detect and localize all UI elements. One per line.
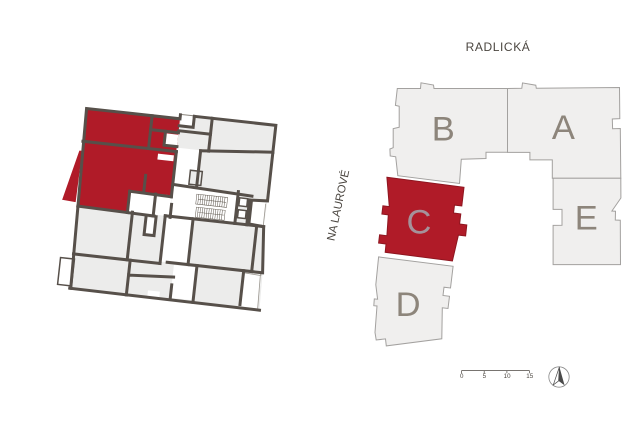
svg-text:C: C (407, 204, 432, 242)
svg-text:NA LAUROVÉ: NA LAUROVÉ (325, 168, 353, 242)
svg-text:10: 10 (504, 373, 511, 380)
svg-text:RADLICKÁ: RADLICKÁ (466, 39, 531, 54)
svg-text:E: E (575, 199, 598, 237)
svg-text:A: A (552, 109, 575, 147)
svg-text:15: 15 (526, 373, 533, 380)
svg-text:B: B (432, 111, 455, 149)
svg-text:5: 5 (483, 373, 487, 380)
svg-text:0: 0 (460, 373, 464, 380)
svg-text:D: D (396, 286, 421, 324)
